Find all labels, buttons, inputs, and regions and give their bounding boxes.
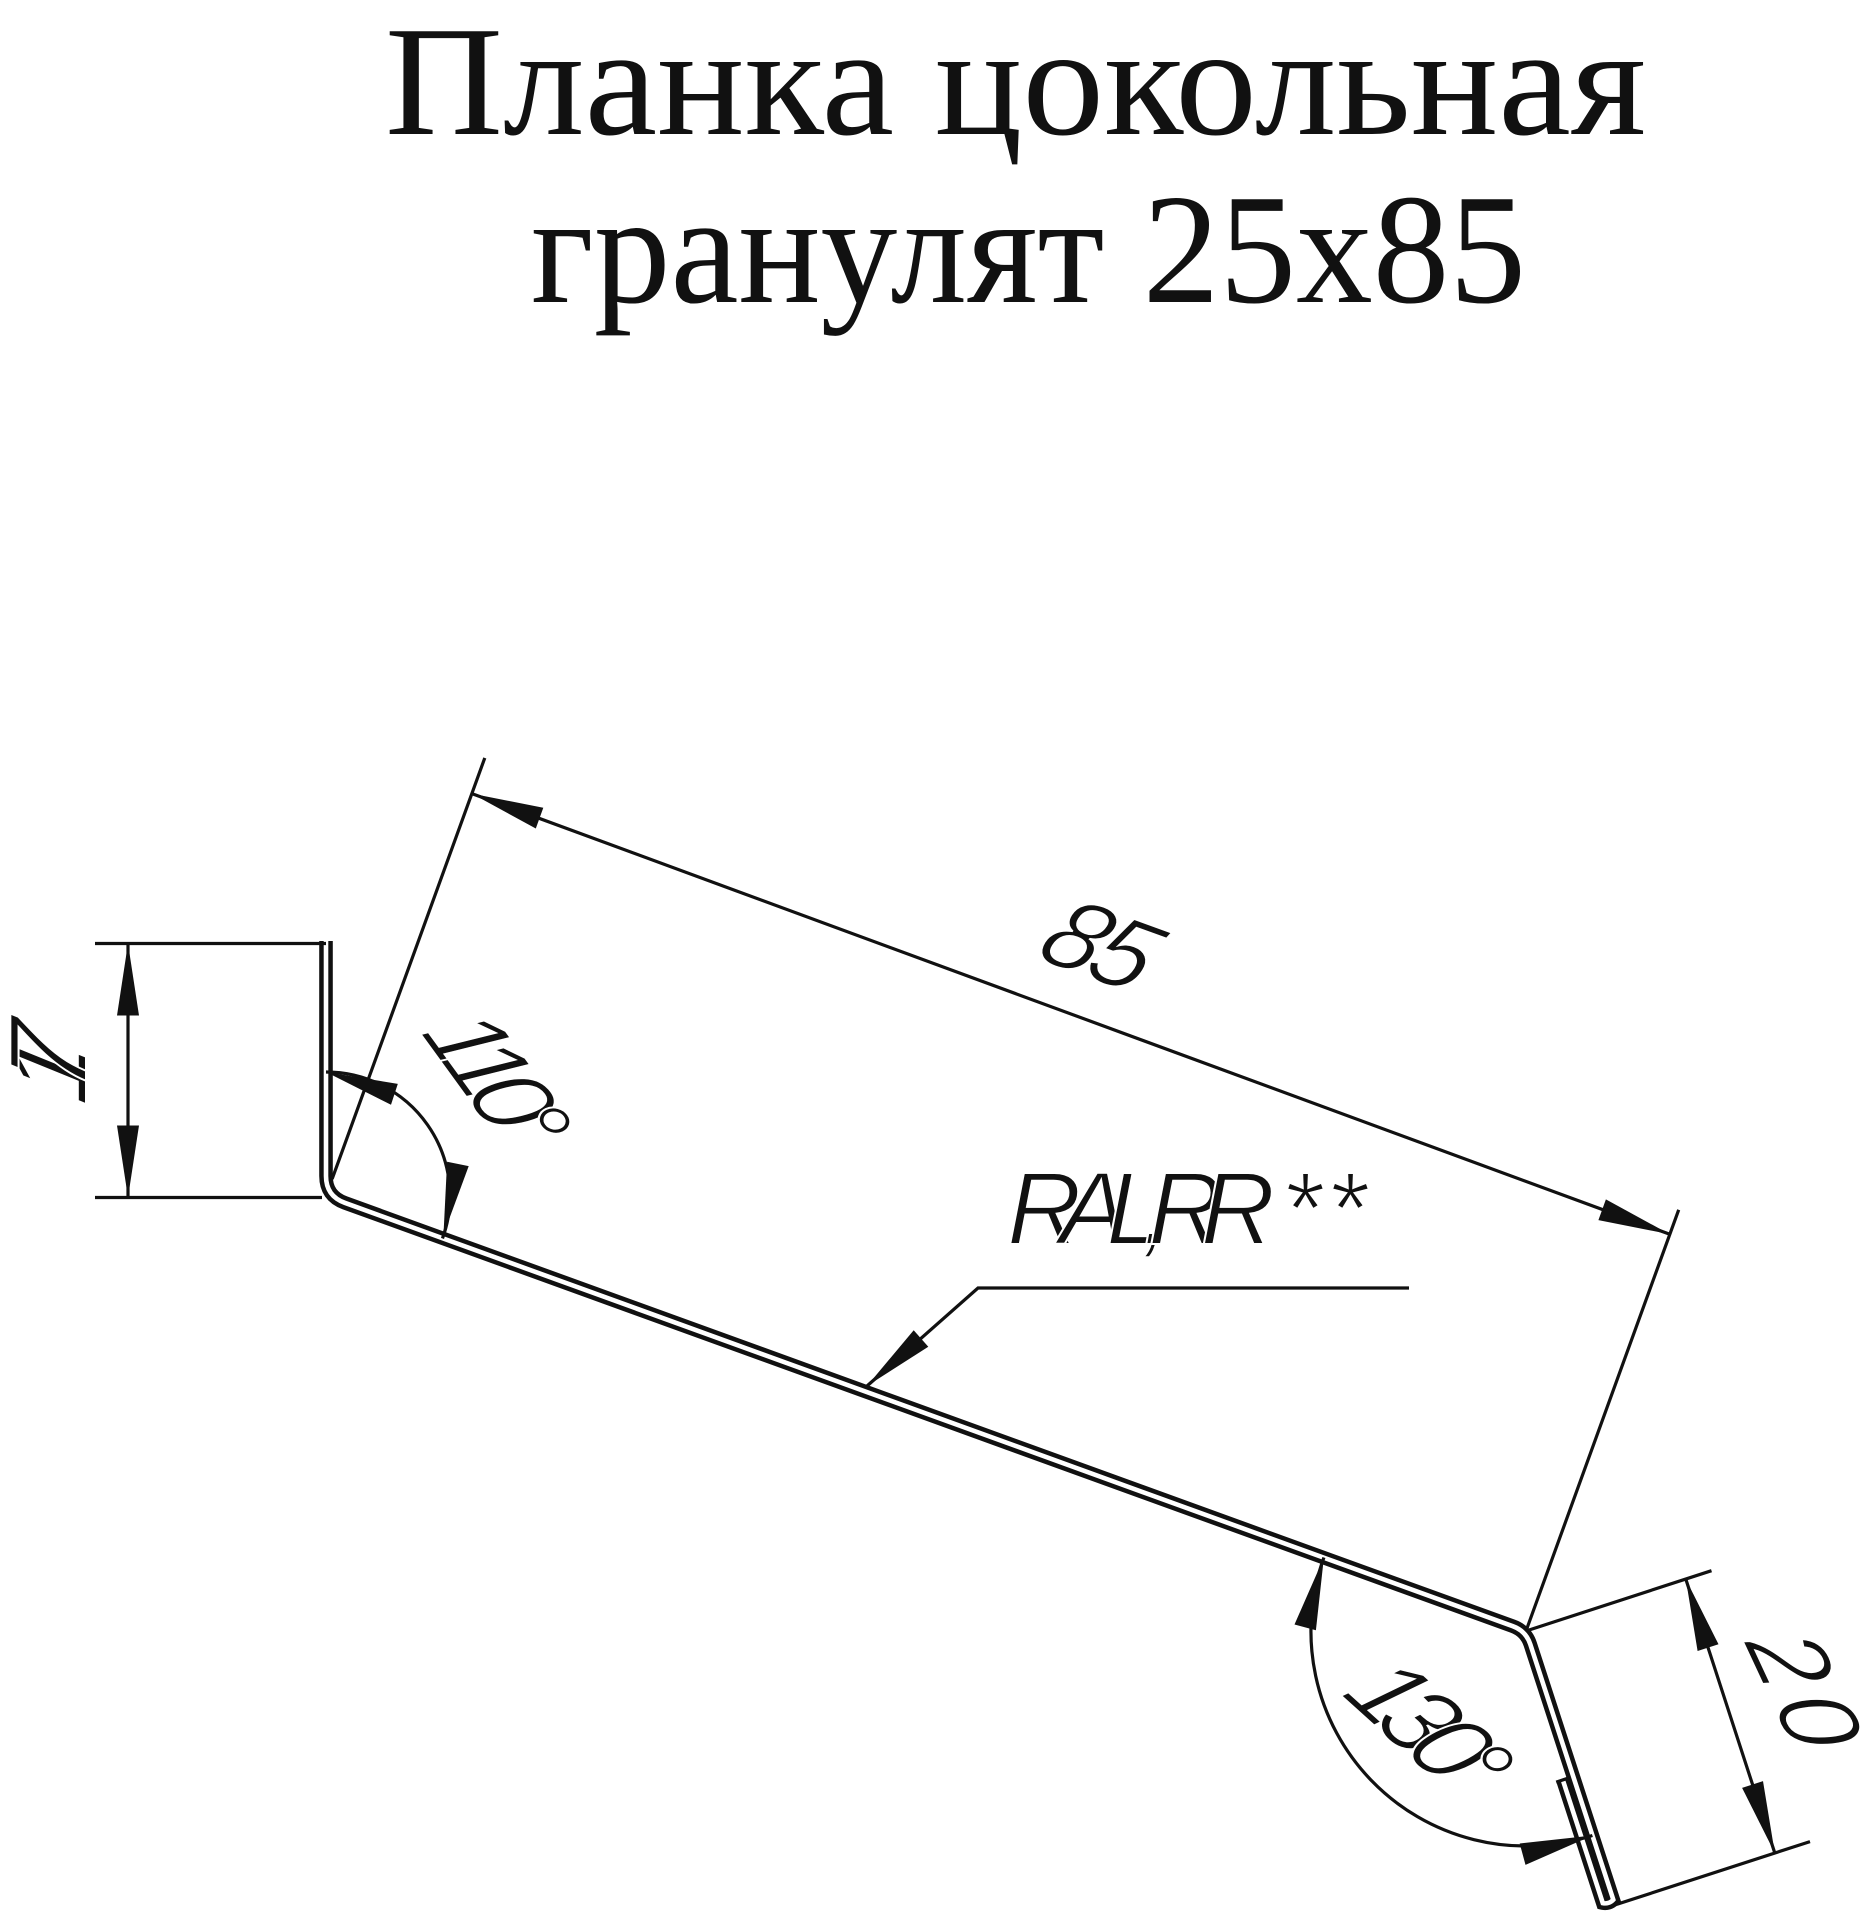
svg-text:*: * <box>1326 1151 1369 1266</box>
svg-text:17: 17 <box>0 1008 110 1112</box>
svg-text:20: 20 <box>1720 1620 1872 1760</box>
svg-text:Планка цокольная: Планка цокольная <box>385 0 1646 168</box>
svg-text:*: * <box>1281 1151 1324 1266</box>
svg-text:110°: 110° <box>398 994 597 1168</box>
svg-text:RAL,RR: RAL,RR <box>1007 1151 1275 1266</box>
svg-text:85: 85 <box>1020 877 1185 1014</box>
svg-text:гранулят 25х85: гранулят 25х85 <box>531 162 1526 336</box>
svg-text:130°: 130° <box>1320 1639 1538 1819</box>
